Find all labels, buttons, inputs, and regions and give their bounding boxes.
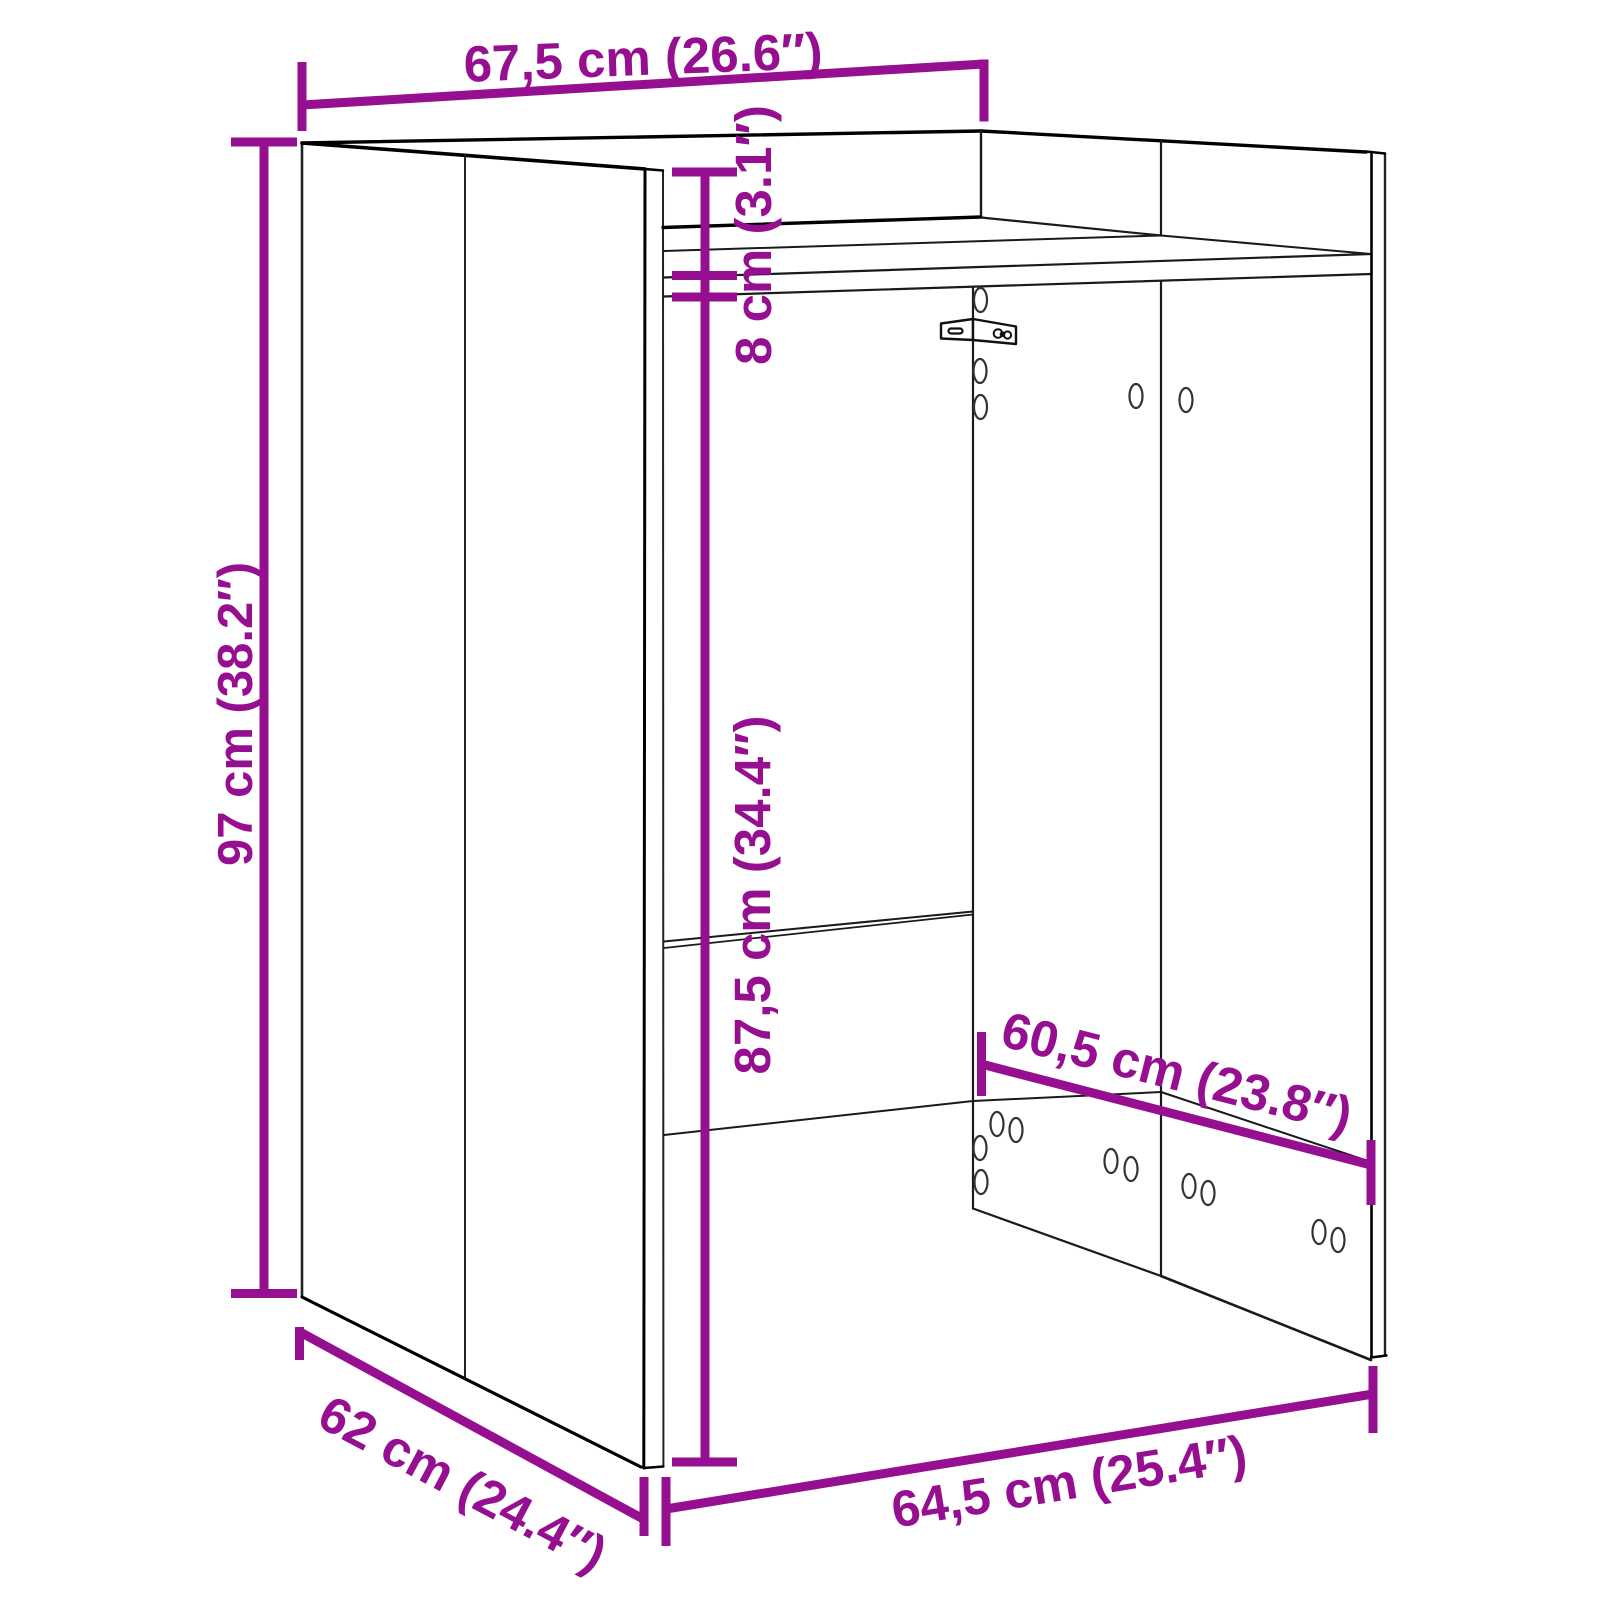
svg-text:87,5 cm (34.4″): 87,5 cm (34.4″)	[724, 716, 781, 1075]
svg-text:97 cm (38.2″): 97 cm (38.2″)	[209, 562, 263, 866]
svg-text:8 cm (3.1″): 8 cm (3.1″)	[725, 105, 782, 365]
